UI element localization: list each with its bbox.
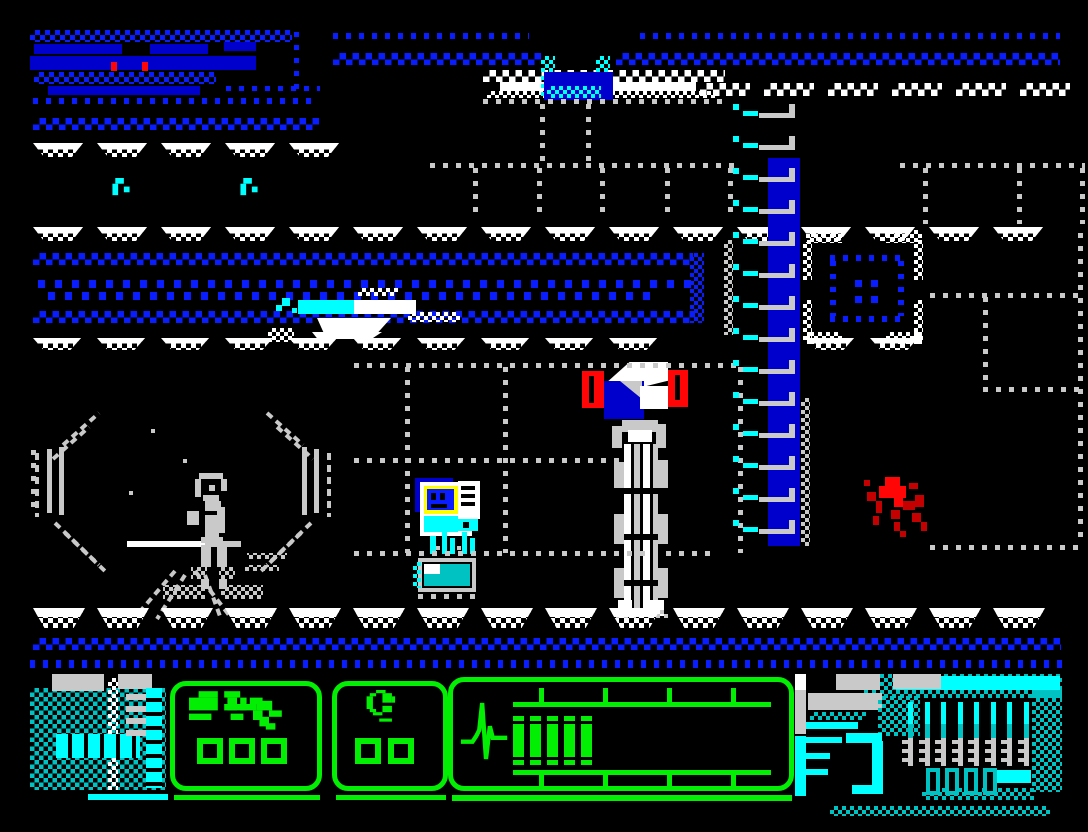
machinery-strip: [795, 690, 806, 734]
floor-ledge: [865, 608, 917, 628]
blue-machinery-bar: [224, 42, 256, 51]
panel-underline: [174, 795, 320, 800]
wall-vent: [803, 228, 925, 346]
health-dash-top: [530, 716, 541, 721]
vent-core-border: [898, 261, 904, 316]
ruler-tick: [731, 775, 736, 789]
health-bar: [513, 716, 771, 766]
panel-slot: [461, 486, 475, 490]
engine-fork: [1001, 702, 1016, 768]
rung-cap: [789, 200, 795, 214]
ammo-slot: [261, 738, 287, 764]
rung-dash: [743, 271, 758, 276]
health-segment: [530, 724, 541, 757]
ladder-side-dither: [801, 398, 810, 546]
fork-mid: [941, 724, 946, 738]
fork-tooth: [935, 740, 943, 744]
ceiling-hatch: [541, 56, 617, 102]
engine-cartridge: [945, 768, 959, 795]
rung-cap: [789, 136, 795, 150]
fork-tooth: [968, 740, 976, 744]
ladder-rung: [733, 296, 795, 312]
machinery-vent-slats: [126, 694, 146, 736]
rung-dash: [743, 399, 758, 404]
fork-mid: [925, 724, 930, 738]
rung-light: [733, 456, 739, 462]
grid-post: [665, 168, 670, 218]
ammo-slot-row: [197, 738, 297, 764]
machinery-cable: [88, 794, 168, 800]
ring-detail-dither: [245, 565, 279, 571]
blue-machinery-row: [30, 30, 292, 42]
floor-ledge: [673, 227, 723, 241]
rung-cap: [789, 168, 795, 182]
fork-mid: [1024, 724, 1029, 738]
floor-ledge: [956, 83, 1006, 96]
floor-ledge: [161, 227, 211, 241]
engine-fork: [1018, 702, 1033, 768]
pillar-column: [624, 444, 658, 612]
machinery-cap: [52, 674, 104, 691]
floor-ledge: [892, 83, 942, 96]
floor-ledge: [481, 227, 531, 241]
rung-dash: [743, 207, 758, 212]
health-segment: [513, 724, 524, 757]
ruler-tick: [539, 775, 544, 789]
fork-tooth: [1001, 740, 1009, 744]
floor-ledge: [993, 227, 1043, 241]
rung-light: [733, 392, 739, 398]
fork-tooth: [1018, 758, 1028, 762]
vent-core-dot: [855, 296, 862, 303]
fork-stem: [941, 702, 946, 724]
pillar-nub: [658, 568, 668, 598]
fork-tooth: [985, 749, 993, 753]
health-segment: [581, 724, 592, 757]
vent-side: [914, 240, 923, 280]
pillar-nub: [658, 514, 668, 544]
grid-post: [1078, 233, 1083, 545]
ammo-slot: [197, 738, 223, 764]
rung-dash: [743, 431, 758, 436]
vent-side: [803, 240, 812, 280]
grid-rail: [930, 293, 1086, 298]
grid-post: [983, 297, 988, 387]
item-slot: [355, 738, 381, 764]
floor-ledge: [929, 227, 979, 241]
machinery-strip: [795, 674, 806, 690]
floor-ledge: [289, 227, 339, 241]
fork-stem: [908, 702, 913, 724]
fork-stem: [925, 702, 930, 724]
floor-ledge: [764, 83, 814, 96]
ruler-tick: [667, 688, 672, 702]
ruler-tick: [539, 688, 544, 702]
engine-fork: [902, 702, 917, 768]
grid-post: [540, 104, 545, 164]
grid-post: [600, 168, 605, 218]
floor-ledge: [993, 608, 1045, 628]
vent-core-border: [830, 255, 904, 261]
rung-dash: [743, 495, 758, 500]
blue-zigzag-line: [333, 53, 541, 65]
blue-dotted-line: [33, 98, 319, 104]
rung-cap: [789, 424, 795, 438]
blue-machinery-bar: [48, 86, 200, 95]
machine-pillar: [580, 362, 692, 618]
health-dash-bottom: [513, 760, 524, 765]
face-eye: [440, 493, 445, 500]
rung-cap: [789, 104, 795, 118]
ship-glint: [292, 308, 297, 313]
floor-ledge: [353, 227, 403, 241]
fork-stem: [1024, 702, 1029, 724]
floor-ledge: [609, 608, 661, 628]
ship-keel: [312, 332, 382, 339]
rung-light: [733, 360, 739, 366]
grid-post: [923, 168, 928, 224]
rung-dash: [743, 111, 758, 116]
ship-nose-dither: [408, 312, 460, 322]
ladder-rung: [733, 424, 795, 440]
blue-zigzag-line: [33, 638, 1061, 650]
health-segment: [547, 724, 558, 757]
rung-dash: [743, 527, 758, 532]
conveyor-zigzag: [33, 253, 693, 265]
rung-cap: [789, 520, 795, 534]
teleporter-ring: [33, 403, 333, 628]
fork-tooth: [919, 758, 929, 762]
floor-ledge: [353, 608, 405, 628]
pistol-icon: [189, 690, 285, 734]
blood-splat: [855, 468, 939, 540]
panel-underline: [452, 795, 792, 801]
grid-post: [1017, 168, 1022, 224]
fork-stem: [974, 702, 979, 724]
pillar-nub: [658, 460, 668, 488]
rung-light: [733, 424, 739, 430]
floor-ledge: [97, 143, 147, 157]
monitor-lower: [424, 516, 458, 532]
grid-rail: [354, 458, 620, 463]
floor-ledge: [828, 83, 878, 96]
grid-rail: [983, 387, 1086, 392]
engine-cartridge: [964, 768, 978, 795]
ladder-rung: [733, 200, 795, 216]
machinery-cap: [836, 674, 880, 690]
ruler-tick: [603, 688, 608, 702]
ruler-tick: [667, 775, 672, 789]
machinery-cap: [118, 674, 152, 689]
machinery-pipe: [146, 688, 162, 788]
ammo-slot: [229, 738, 255, 764]
machinery-elbow-pipe: [852, 785, 883, 794]
ladder-side-dither: [724, 240, 733, 335]
rung-cap: [789, 232, 795, 246]
pillar-nub: [614, 514, 624, 544]
blue-machinery-bar: [34, 44, 122, 54]
floor-ledge: [545, 227, 595, 241]
item-slot-row: [355, 738, 435, 764]
floor-ledge: [673, 608, 725, 628]
rung-light: [733, 200, 739, 206]
engine-fork: [919, 702, 934, 768]
rung-cap: [789, 264, 795, 278]
machinery-dither: [810, 712, 866, 720]
ring-side-bars: [47, 429, 319, 515]
machinery-cap: [893, 674, 941, 689]
ladder-rung: [733, 264, 795, 280]
floor-ledge: [225, 227, 275, 241]
engine-cartridge: [983, 768, 997, 795]
health-dash-top: [564, 716, 575, 721]
machinery-gray-bar: [808, 693, 882, 710]
rung-light: [733, 168, 739, 174]
beacon-slit: [589, 376, 594, 403]
rung-cap: [789, 296, 795, 310]
rung-cap: [789, 488, 795, 502]
engine-fork: [952, 702, 967, 768]
blue-machinery-bar: [150, 44, 208, 54]
ladder-rung: [733, 520, 795, 536]
floor-ledge: [481, 608, 533, 628]
grid-rail: [483, 99, 726, 104]
rung-dash: [743, 143, 758, 148]
rung-light: [733, 520, 739, 526]
machinery-pipe: [806, 722, 858, 729]
health-dash-top: [581, 716, 592, 721]
pillar-joint: [624, 488, 658, 494]
hatch-door-detail: [547, 86, 601, 98]
grid-post: [1080, 168, 1085, 224]
ladder-rung: [733, 136, 795, 152]
platform-rail: [127, 541, 205, 547]
printer-feet: [418, 594, 476, 599]
panel-dot: [463, 522, 469, 528]
panel-slot: [461, 502, 475, 506]
fork-tooth: [919, 740, 927, 744]
cable-clip: [436, 546, 440, 550]
engine-fork: [935, 702, 950, 768]
pillar-joint: [624, 534, 658, 540]
health-dash-top: [513, 716, 524, 721]
blue-dotted-line: [30, 660, 1062, 668]
beacon-white-block: [640, 386, 668, 409]
floor-ledge: [806, 338, 854, 350]
panel-underline: [336, 795, 446, 800]
engine-cartridge: [926, 768, 940, 795]
conveyor-end-cap: [690, 253, 704, 323]
fork-tooth: [952, 740, 960, 744]
engine-fork: [968, 702, 983, 768]
fork-mid: [958, 724, 963, 738]
fork-stem: [1007, 702, 1012, 724]
rung-light: [733, 136, 739, 142]
item-panel: [332, 681, 448, 791]
grid-post: [405, 367, 410, 553]
floor-ledge: [481, 338, 529, 350]
grid-post: [31, 450, 36, 512]
rung-dash: [743, 367, 758, 372]
fork-stem: [991, 702, 996, 724]
computer-console: [413, 476, 483, 600]
machinery-pipe: [806, 737, 842, 743]
fork-mid: [908, 724, 913, 738]
blue-zigzag-line: [616, 53, 1060, 65]
wall-lamp-icon: [112, 178, 130, 198]
weapon-panel: [170, 681, 322, 791]
vent-core-dot: [871, 296, 878, 303]
floor-ledge: [609, 227, 659, 241]
fork-tooth: [902, 740, 910, 744]
panel-slot: [461, 494, 475, 498]
machinery-pipe: [806, 769, 828, 775]
pillar-nub: [614, 568, 624, 598]
warning-light: [111, 62, 117, 71]
ruler-ticks-top: [453, 688, 789, 702]
machinery-cyan-bar: [997, 770, 1031, 783]
beacon-slit: [675, 375, 680, 400]
fork-tooth: [919, 749, 927, 753]
vent-core-border: [830, 316, 904, 322]
vent-core-dot: [855, 280, 862, 287]
face-eye: [431, 493, 436, 500]
health-dash-bottom: [547, 760, 558, 765]
floor-ledge: [97, 227, 147, 241]
floor-ledge: [870, 338, 918, 350]
floor-ledge: [801, 608, 853, 628]
fork-tooth: [935, 758, 945, 762]
rung-dash: [743, 239, 758, 244]
rung-cap: [789, 328, 795, 342]
vent-core-dot: [871, 280, 878, 287]
game-screen[interactable]: [0, 0, 1088, 832]
fork-tooth: [902, 749, 910, 753]
fork-tooth: [968, 749, 976, 753]
fork-tooth: [1018, 749, 1026, 753]
rung-light: [733, 296, 739, 302]
floor-ledge: [161, 143, 211, 157]
floor-ledge: [700, 83, 750, 96]
pillar-nub: [614, 462, 624, 488]
blue-zigzag-line: [33, 118, 319, 130]
ladder-rung: [733, 488, 795, 504]
blue-dotted-line: [333, 33, 529, 39]
ladder-rung: [733, 104, 795, 120]
ship-glint: [276, 305, 282, 311]
face-mouth: [431, 504, 447, 508]
fork-stem: [958, 702, 963, 724]
floor-ledge: [33, 338, 81, 350]
fork-tooth: [985, 758, 995, 762]
rung-dash: [743, 303, 758, 308]
ladder-rung: [733, 392, 795, 408]
floor-ledge: [737, 608, 789, 628]
heartbeat-icon: [459, 696, 513, 768]
health-dash-bottom: [530, 760, 541, 765]
cable-clip: [457, 546, 461, 550]
rung-light: [733, 232, 739, 238]
machinery-frame-edge: [226, 86, 320, 91]
ring-detail-dither: [247, 553, 287, 559]
machinery-pipe: [800, 753, 830, 759]
ladder-rung: [733, 168, 795, 184]
floor-ledge: [545, 608, 597, 628]
fork-tooth: [902, 758, 912, 762]
vent-core-border: [830, 261, 836, 316]
floor-ledge: [161, 338, 209, 350]
fork-tooth: [1018, 740, 1026, 744]
ship-body: [312, 318, 396, 333]
printer-edge-dither: [413, 562, 421, 588]
pillar-neck: [628, 430, 652, 442]
rung-cap: [789, 392, 795, 406]
blue-machinery-row: [34, 72, 216, 84]
fork-mid: [1007, 724, 1012, 738]
floor-ledge: [545, 338, 593, 350]
machinery-strip: [795, 736, 806, 796]
floor-ledge: [929, 608, 981, 628]
machinery-duct: [56, 734, 140, 758]
grid-rail: [354, 363, 742, 368]
blue-dotted-line: [640, 33, 1060, 39]
rung-dash: [743, 175, 758, 180]
vitals-panel: [448, 677, 794, 791]
ship-hull-white: [354, 300, 416, 314]
ruler-tick: [731, 688, 736, 702]
rung-cap: [789, 360, 795, 374]
ship-exhaust-dither: [268, 328, 294, 342]
printer-paper: [424, 564, 440, 574]
ladder-rung: [733, 456, 795, 472]
pillar-joint: [624, 580, 658, 586]
grid-post: [586, 104, 591, 164]
ship-hull-cyan: [298, 300, 354, 314]
fork-tooth: [1001, 749, 1009, 753]
floor-ledge: [417, 227, 467, 241]
machinery-elbow-pipe: [872, 741, 883, 791]
floor-ledge: [33, 143, 83, 157]
item-slot: [388, 738, 414, 764]
pillar-nub: [612, 426, 622, 448]
device-icon: [365, 690, 403, 728]
rung-light: [733, 328, 739, 334]
ship-canopy-dither: [358, 288, 398, 296]
floor-ledge: [609, 338, 657, 350]
floor-ledge: [1020, 83, 1070, 96]
fork-tooth: [952, 749, 960, 753]
floor-ledge: [33, 227, 83, 241]
health-dash-top: [547, 716, 558, 721]
engine-fork: [985, 702, 1000, 768]
fork-tooth: [952, 758, 962, 762]
fork-tooth: [1001, 758, 1011, 762]
ruler-tick: [603, 775, 608, 789]
warning-light: [142, 62, 148, 71]
ship-glint: [282, 298, 290, 306]
ladder-rung: [733, 232, 795, 248]
fork-tooth: [985, 740, 993, 744]
grid-post: [473, 168, 478, 218]
floor-ledge: [225, 143, 275, 157]
ladder-rung: [733, 328, 795, 344]
floor-ledge: [289, 143, 339, 157]
fork-mid: [991, 724, 996, 738]
grid-rail: [930, 545, 1086, 550]
rung-dash: [743, 463, 758, 468]
wall-lamp-icon: [240, 178, 258, 198]
grid-post: [503, 367, 508, 553]
